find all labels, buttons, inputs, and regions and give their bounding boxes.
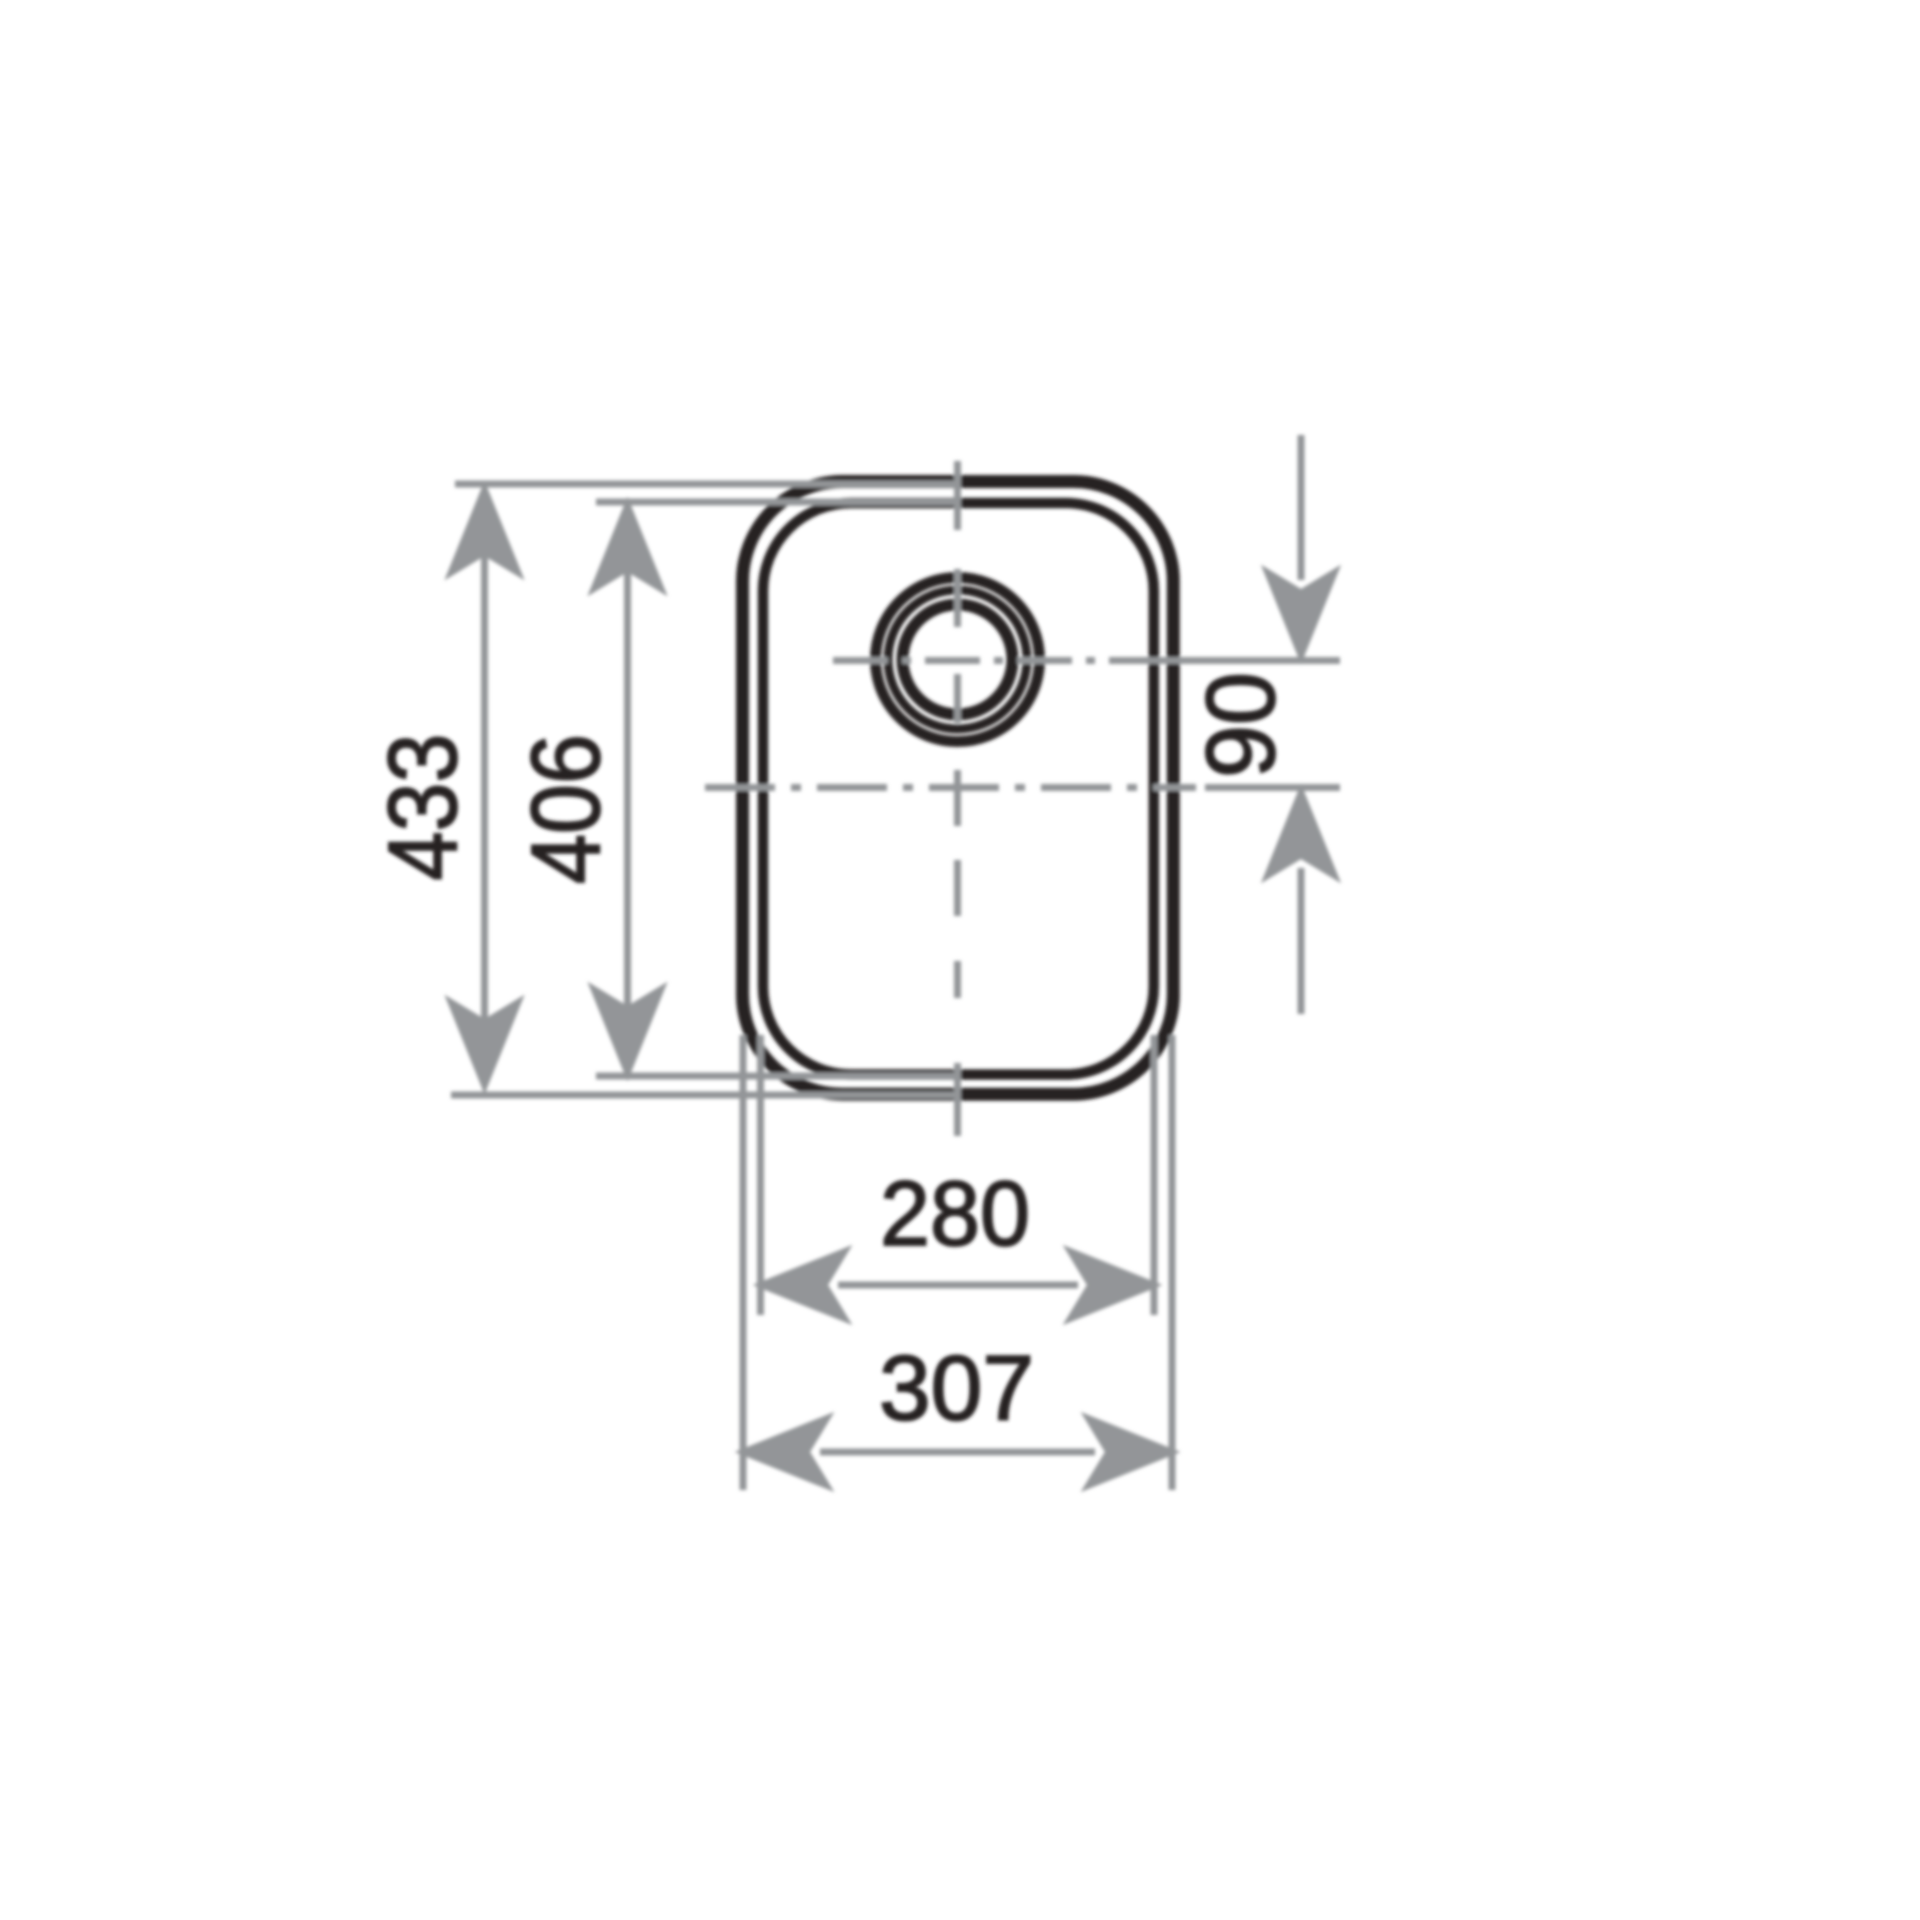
svg-text:307: 307 bbox=[879, 1338, 1034, 1440]
svg-text:406: 406 bbox=[511, 734, 620, 884]
svg-text:433: 433 bbox=[368, 734, 477, 881]
svg-text:90: 90 bbox=[1186, 672, 1295, 778]
svg-text:280: 280 bbox=[880, 1163, 1030, 1265]
